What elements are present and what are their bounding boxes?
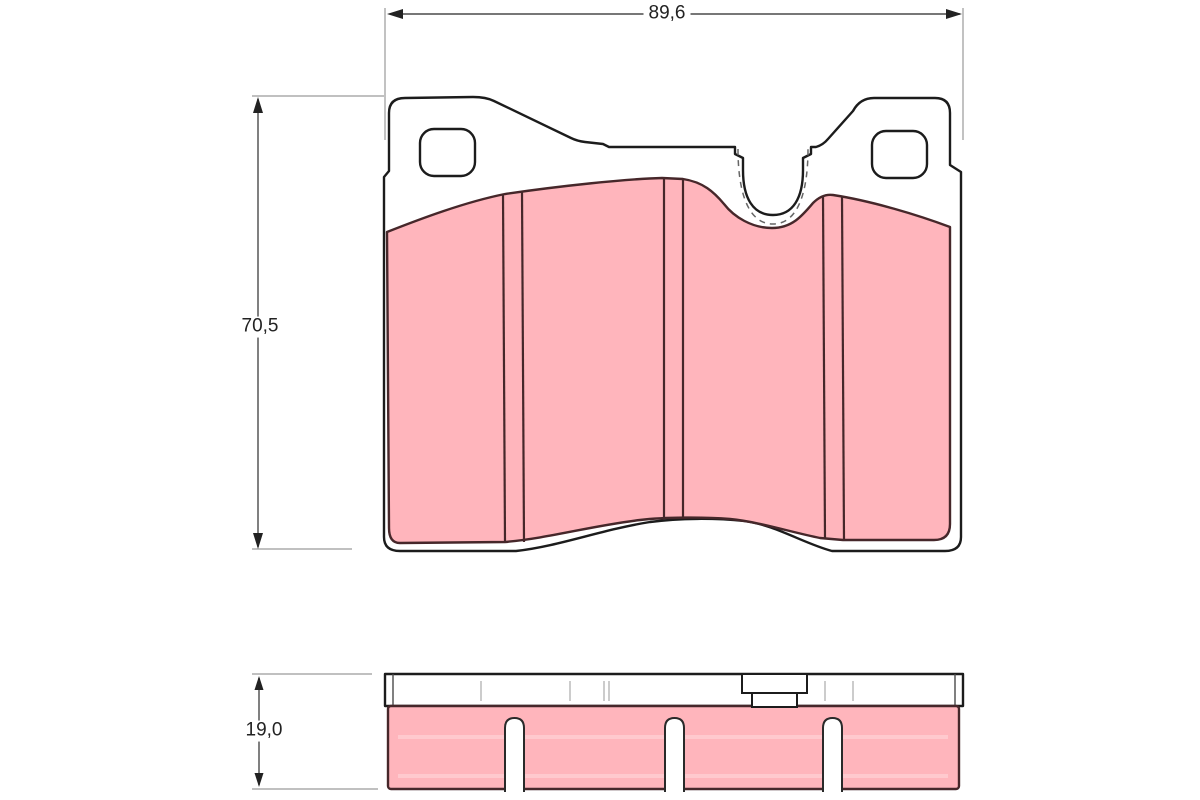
thickness-dimension-label: 19,0 [241, 721, 288, 742]
width-arrow-right [946, 9, 962, 19]
retaining-tab-lower [752, 693, 797, 707]
brake-pad-drawing [0, 0, 1200, 800]
side-view [385, 674, 963, 792]
height-dimension-label: 70,5 [237, 317, 284, 338]
thickness-arrow-top [255, 676, 264, 690]
friction-material [387, 178, 950, 543]
width-dimension-label: 89,6 [644, 4, 691, 25]
height-arrow-bottom [253, 533, 263, 549]
left-mounting-hole [420, 129, 475, 176]
right-mounting-hole [872, 131, 927, 178]
thickness-arrow-bottom [255, 773, 264, 787]
height-arrow-top [253, 97, 263, 113]
product-diagram-canvas: 89,6 70,5 19,0 [0, 0, 1200, 800]
side-slot-2 [665, 718, 684, 792]
side-slot-1 [505, 718, 524, 792]
width-arrow-left [387, 9, 403, 19]
front-view [384, 97, 961, 551]
side-backplate-strip [385, 674, 963, 706]
side-slot-3 [823, 718, 842, 792]
retaining-tab-upper [742, 674, 807, 693]
